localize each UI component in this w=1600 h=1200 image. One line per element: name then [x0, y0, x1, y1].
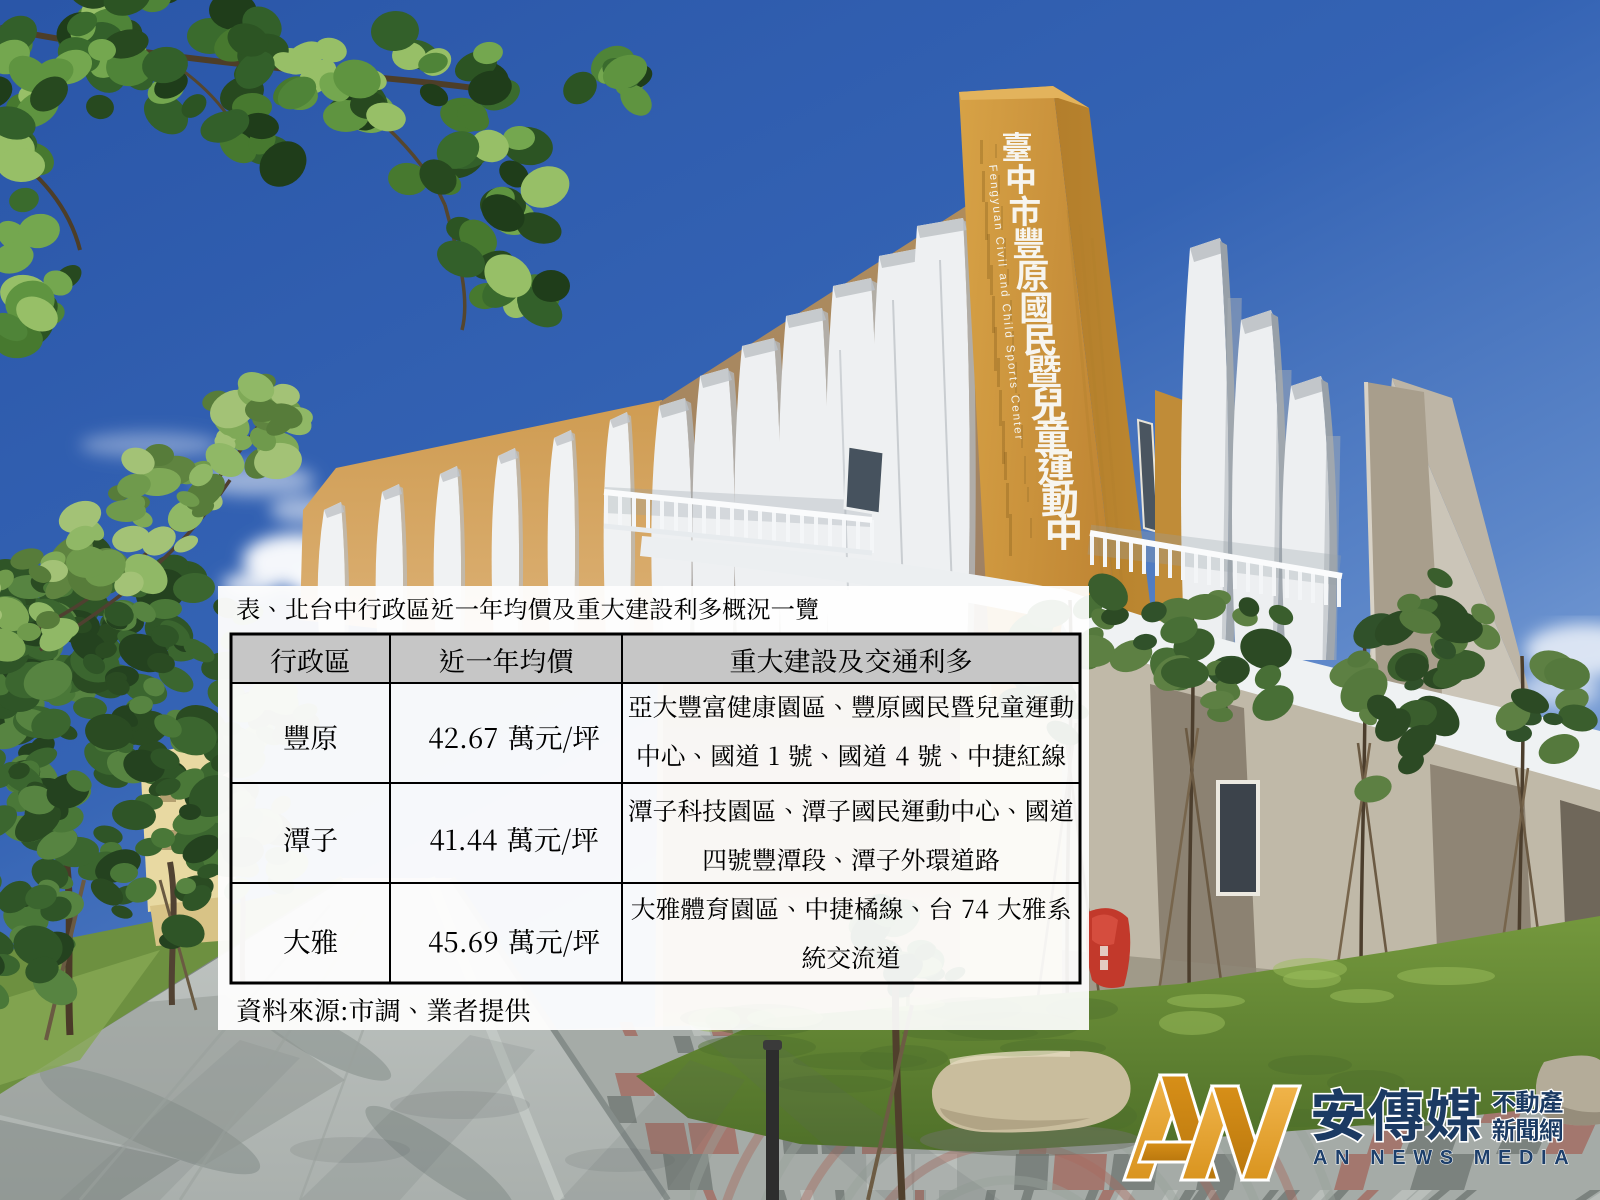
svg-text:AN NEWS MEDIA: AN NEWS MEDIA [1313, 1147, 1576, 1169]
